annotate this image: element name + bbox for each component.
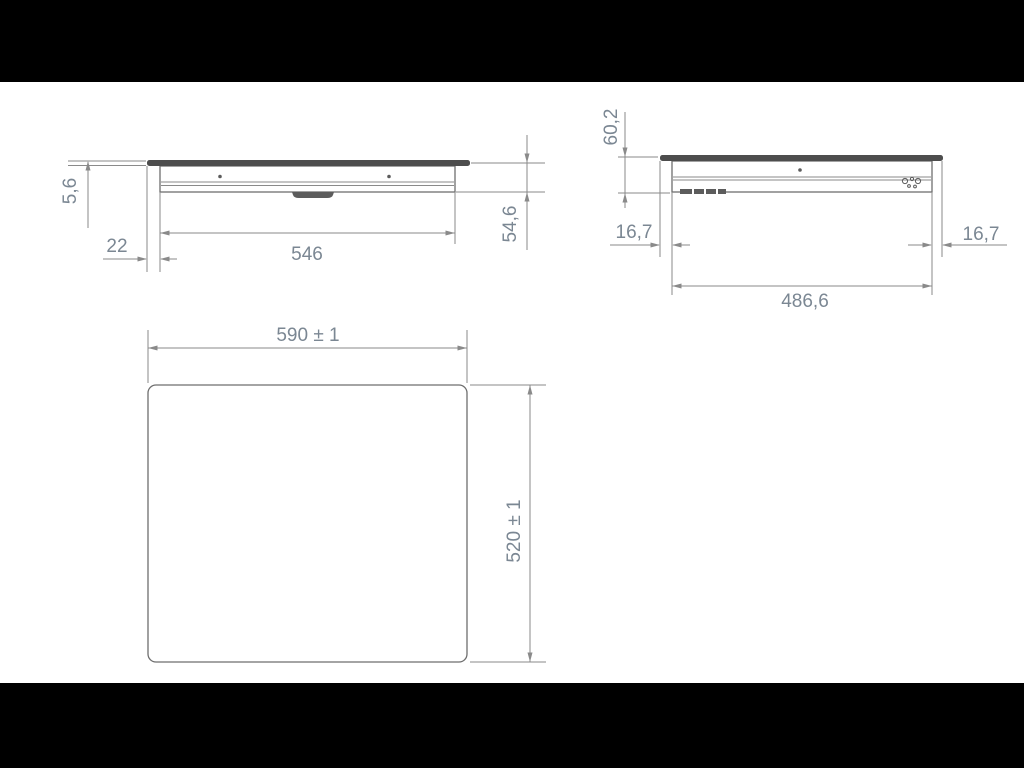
drawing-sheet: 5,6 22 546 54,6 (0, 82, 1024, 683)
front-body-outline (160, 166, 455, 192)
plan-view: 590 ± 1 520 ± 1 (148, 325, 546, 662)
plan-outline (148, 385, 467, 662)
front-glass-panel (147, 160, 470, 166)
front-dim-label-body-width: 546 (291, 244, 323, 265)
front-view: 5,6 22 546 54,6 (60, 135, 545, 272)
front-dim-body-width: 546 (160, 192, 455, 265)
side-glass-panel (660, 155, 943, 161)
side-dim-label-total-height: 60,2 (601, 109, 622, 146)
front-dim-label-body-height: 54,6 (500, 206, 521, 243)
plan-dim-label-outer-width: 590 ± 1 (276, 325, 339, 346)
front-fastener-dot-right (387, 175, 391, 179)
side-dim-body-depth: 486,6 (672, 284, 932, 313)
side-vent-detail (680, 189, 726, 194)
technical-drawing: 5,6 22 546 54,6 (0, 82, 1024, 683)
side-dim-label-overhang-left: 16,7 (616, 222, 653, 243)
front-dim-label-glass-overhang: 22 (106, 236, 127, 257)
side-dim-label-body-depth: 486,6 (781, 291, 829, 312)
front-fastener-dot-left (218, 175, 222, 179)
plan-dim-outer-depth: 520 ± 1 (470, 385, 546, 662)
front-dim-label-glass-thickness: 5,6 (60, 178, 81, 204)
side-fastener-dot (798, 168, 802, 172)
plan-dim-outer-width: 590 ± 1 (148, 325, 467, 383)
front-dim-body-height: 54,6 (456, 135, 545, 250)
front-dim-glass-thickness: 5,6 (60, 161, 146, 228)
front-junction-box (292, 192, 334, 198)
side-view: 60,2 16,7 16,7 486,6 (601, 109, 1007, 312)
side-dim-label-overhang-right: 16,7 (963, 224, 1000, 245)
plan-dim-label-outer-depth: 520 ± 1 (504, 499, 525, 562)
